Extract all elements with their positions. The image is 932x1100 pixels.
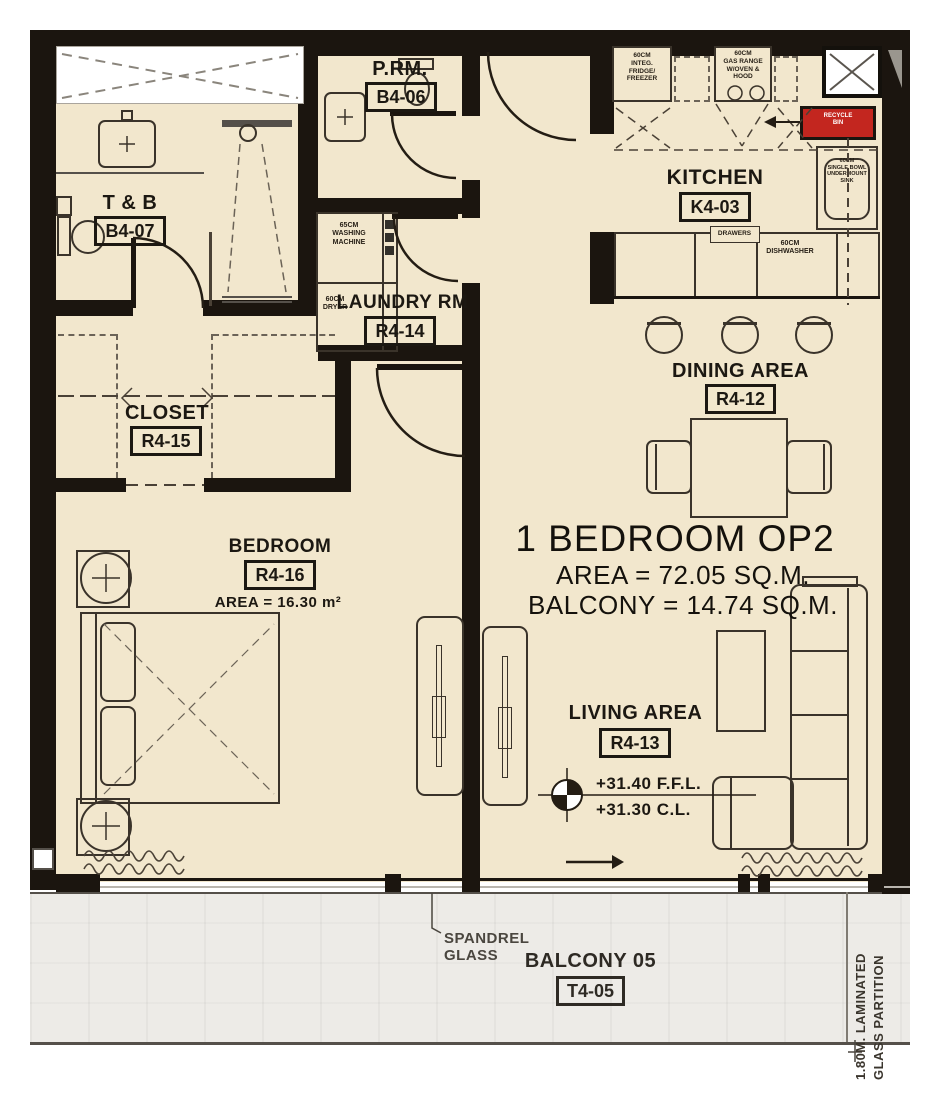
room-label-prm: P.RM. <box>340 58 460 81</box>
glass-partition-note: 1.80M. LAMINATED GLASS PARTITION <box>852 862 888 1080</box>
bedside-lamp-icon <box>80 800 132 852</box>
vanity-counter-line <box>56 172 204 174</box>
room-code-balcony: T4-05 <box>518 976 663 1006</box>
unit-balcony-area: BALCONY = 14.74 SQ.M. <box>466 590 900 621</box>
sofa-cushion-line <box>792 778 847 780</box>
room-label-laundry: LAUNDRY RM <box>330 292 475 314</box>
window-mullion <box>738 874 750 892</box>
window-mullion <box>462 874 480 892</box>
room-label-balcony: BALCONY 05 <box>508 950 673 973</box>
washing-machine-label: 65CM WASHING MACHINE <box>318 222 380 247</box>
wall-segment <box>204 478 351 492</box>
dining-chair <box>786 440 832 494</box>
gas-range-label: 60CM GAS RANGE W/OVEN & HOOD <box>714 50 772 81</box>
room-code-closet: R4-15 <box>110 426 222 456</box>
recycle-bin-label: RECYCLE BIN <box>803 113 873 127</box>
cl-label: +31.30 C.L. <box>596 800 746 820</box>
appliance-knob <box>385 220 394 229</box>
dining-table <box>690 418 788 518</box>
shaft-box <box>822 46 882 98</box>
shower-partition <box>209 232 212 306</box>
chair-back-line <box>823 444 825 490</box>
sofa-cushion-line <box>792 714 847 716</box>
room-code-kitchen: K4-03 <box>656 192 774 222</box>
balcony-top-line <box>30 892 910 894</box>
door-leaf <box>377 364 465 370</box>
wall-segment <box>462 361 480 883</box>
sink-tap <box>121 110 133 121</box>
stool-back-line <box>647 322 681 325</box>
sofa-vertical <box>790 584 868 850</box>
room-label-dining: DINING AREA <box>658 360 823 383</box>
appliance-knob <box>385 246 394 255</box>
glass-partition-line <box>846 892 848 1042</box>
window-mullion <box>758 874 770 892</box>
cabinet-handle <box>498 707 512 749</box>
room-label-closet: CLOSET <box>102 402 232 425</box>
unit-area: AREA = 72.05 SQ.M. <box>478 560 888 591</box>
kitchen-cabinet <box>774 56 798 102</box>
wall-segment <box>56 478 126 492</box>
bedside-lamp-icon <box>80 552 132 604</box>
wall-notch-triangle <box>888 50 902 88</box>
sofa-backrest-line <box>847 588 849 846</box>
wall-column <box>590 232 614 304</box>
wall-segment <box>462 180 480 218</box>
headboard-line <box>95 612 97 804</box>
wall-segment <box>462 56 480 116</box>
room-code-bedroom: R4-16 <box>222 560 338 590</box>
wardrobe-dashed-line <box>213 334 335 336</box>
stool-back-line <box>723 322 757 325</box>
room-code-living: R4-13 <box>570 728 700 758</box>
dishwasher-label: 60CM DISHWASHER <box>748 240 832 257</box>
sofa-cushion-line <box>792 650 847 652</box>
kitchen-cabinet <box>674 56 710 102</box>
bedroom-area-label: AREA = 16.30 m² <box>190 594 366 611</box>
room-code-prm: B4-06 <box>346 82 456 112</box>
appliance-knob <box>385 233 394 242</box>
recycle-bin: RECYCLE BIN <box>800 106 876 140</box>
room-code-dining: R4-12 <box>668 384 813 414</box>
dining-chair <box>646 440 692 494</box>
counter-seam <box>836 232 838 298</box>
wall-segment <box>335 361 351 487</box>
ffl-label: +31.40 F.F.L. <box>596 774 761 794</box>
shower-tray-line <box>222 301 292 303</box>
wall-segment <box>882 30 910 894</box>
shower-tray-line <box>222 296 292 298</box>
bathroom-sink <box>98 120 156 168</box>
breakfast-bar-edge <box>614 296 880 299</box>
room-label-kitchen: KITCHEN <box>650 166 780 190</box>
stool-back-line <box>797 322 831 325</box>
wardrobe-dashed-line <box>58 334 116 336</box>
shower-head-icon <box>239 124 257 142</box>
ledge-box <box>56 46 304 104</box>
cabinet-handle <box>432 696 446 738</box>
room-label-living: LIVING AREA <box>558 702 713 725</box>
floor-plan: 65CM WASHING MACHINE 60CM DRYER 60CM INT… <box>0 0 932 1100</box>
counter-seam <box>694 232 696 298</box>
shower-bar <box>222 120 292 127</box>
wall-segment <box>30 30 56 882</box>
corner-x-box <box>32 848 54 870</box>
fridge-label: 60CM INTEG. FRIDGE/ FREEZER <box>613 52 671 83</box>
balcony-floor <box>30 892 910 1044</box>
balcony-bottom-line <box>30 1042 910 1045</box>
window-mullion <box>385 874 401 892</box>
drawers-label: DRAWERS <box>711 230 758 238</box>
pillow <box>100 706 136 786</box>
unit-title: 1 BEDROOM OP2 <box>468 518 882 560</box>
room-code-tb: B4-07 <box>66 216 194 246</box>
appliance-divider <box>316 282 398 284</box>
room-label-bedroom: BEDROOM <box>220 536 340 558</box>
window-mullion <box>56 874 100 892</box>
chair-back-line <box>655 444 657 490</box>
wall-column <box>590 48 614 134</box>
wall-segment <box>56 300 133 316</box>
door-leaf <box>392 214 458 219</box>
room-label-tb: T & B <box>70 192 190 215</box>
coffee-table <box>716 630 766 732</box>
room-code-laundry: R4-14 <box>344 316 456 346</box>
door-leaf <box>131 238 136 308</box>
sink-label: 60CM SINGLE BOWL UNDERMOUNT SINK <box>814 158 880 184</box>
pillow <box>100 622 136 702</box>
